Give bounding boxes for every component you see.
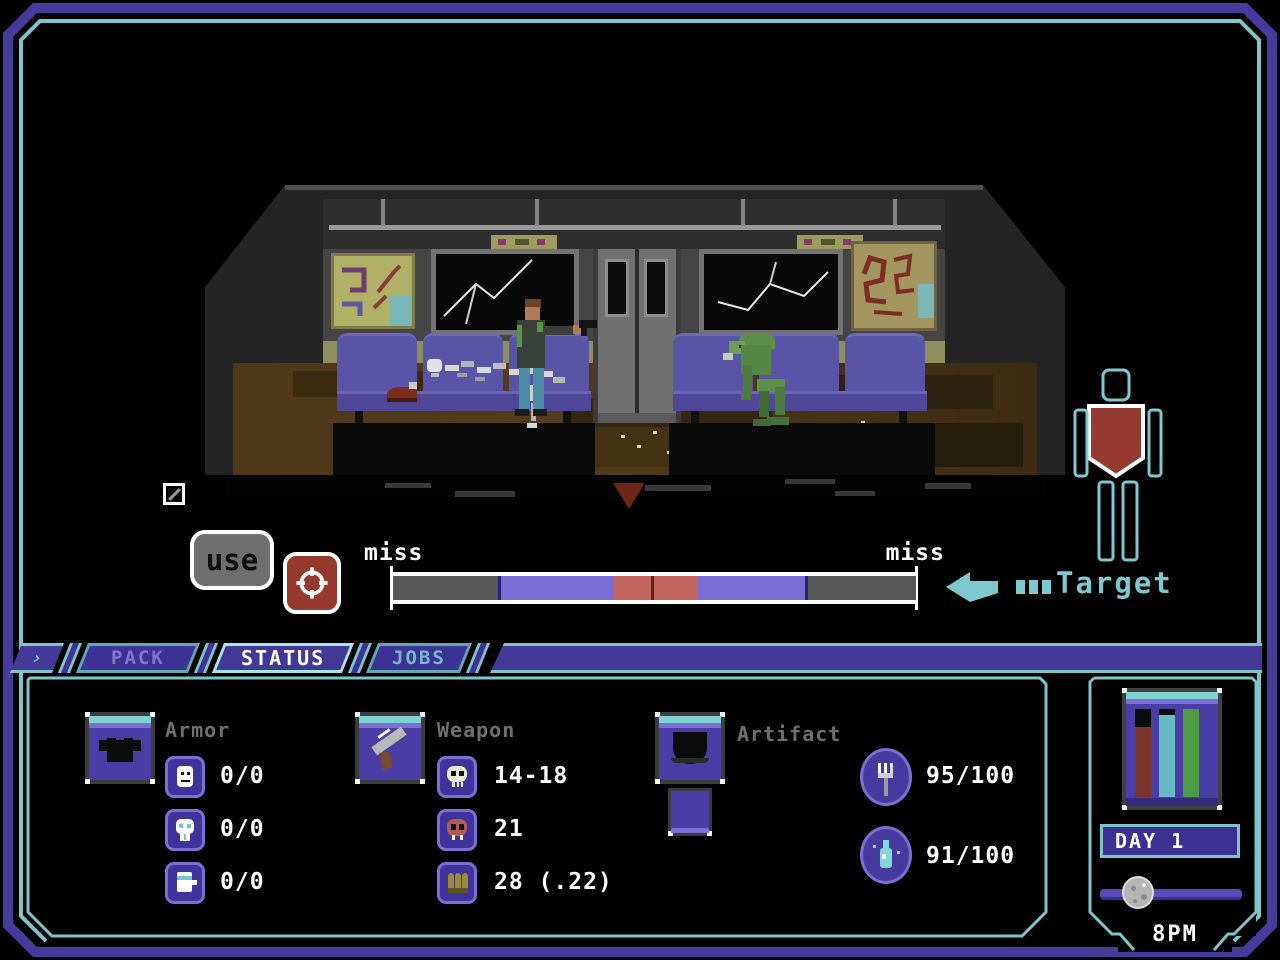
target-reticle-button[interactable] xyxy=(283,552,341,614)
timing-bar-segments xyxy=(393,576,916,600)
timing-bar-segment xyxy=(697,576,805,600)
artifact-section-label: Artifact xyxy=(737,722,841,746)
target-arrow-icon xyxy=(946,572,1010,602)
armor-shirt-icon xyxy=(107,738,133,762)
timing-bar-segment xyxy=(393,576,498,600)
miss-label-left: miss xyxy=(364,540,423,566)
mask-armor-icon xyxy=(165,809,205,851)
time-slider-knob[interactable] xyxy=(1122,876,1154,909)
crosshair-icon xyxy=(295,565,329,601)
armor-section-label: Armor xyxy=(165,718,230,742)
armor-head-value: 0/0 xyxy=(220,763,265,789)
weapon-section-label: Weapon xyxy=(437,718,515,742)
skull-icon xyxy=(437,756,477,798)
day-counter: DAY 1 xyxy=(1100,824,1240,858)
hunger-badge xyxy=(860,748,912,806)
arrow-dash xyxy=(1042,580,1051,594)
weapon-ammo-value: 28 (.22) xyxy=(494,869,613,895)
game-screen: use miss miss Target › PA xyxy=(0,0,1280,960)
use-button[interactable]: use xyxy=(190,530,274,590)
target-label: Target xyxy=(1056,566,1173,600)
thirst-value: 91/100 xyxy=(926,843,1015,869)
armor-body-value: 0/0 xyxy=(220,816,265,842)
tab-divider-bar xyxy=(490,643,1262,673)
tab-jobs[interactable]: JOBS xyxy=(366,643,472,673)
weapon-slot[interactable] xyxy=(355,712,425,784)
vitals-monitor xyxy=(1122,688,1222,810)
tab-pointer-icon: › xyxy=(10,643,64,673)
target-body-figure[interactable] xyxy=(1072,368,1164,566)
vitals-bars xyxy=(1135,709,1211,797)
tab-bar: › PACK STATUS JOBS xyxy=(16,643,1262,673)
torso-armor-icon xyxy=(165,862,205,904)
vital-teal-bar xyxy=(1159,709,1175,797)
day-label: DAY 1 xyxy=(1115,829,1185,853)
weapon-damage-value: 14-18 xyxy=(494,763,568,789)
bullets-icon xyxy=(437,862,477,904)
tab-pack[interactable]: PACK xyxy=(76,643,200,673)
vital-red-bar xyxy=(1135,709,1151,797)
corner-marker-icon xyxy=(163,483,185,505)
hunger-value: 95/100 xyxy=(926,763,1015,789)
weapon-crit-value: 21 xyxy=(494,816,524,842)
timing-bar-segment xyxy=(654,576,697,600)
tab-status[interactable]: STATUS xyxy=(212,643,354,673)
armor-slot[interactable] xyxy=(85,712,155,784)
timing-bar-segment xyxy=(808,576,916,600)
artifact-slot[interactable] xyxy=(655,712,725,784)
timing-bar-segment xyxy=(613,576,652,600)
artifact-sub-slot[interactable] xyxy=(668,788,712,836)
red-skull-icon xyxy=(437,809,477,851)
head-armor-icon xyxy=(165,756,205,798)
arrow-dash xyxy=(1016,580,1025,594)
use-button-label: use xyxy=(206,543,258,577)
attack-timing-bar xyxy=(393,572,916,604)
vital-green-bar xyxy=(1183,709,1199,797)
time-label: 8PM xyxy=(1130,922,1220,947)
miss-label-right: miss xyxy=(845,540,945,566)
arrow-dash xyxy=(1029,580,1038,594)
thirst-badge xyxy=(860,826,912,884)
timing-bar-segment xyxy=(501,576,613,600)
armor-legs-value: 0/0 xyxy=(220,869,265,895)
